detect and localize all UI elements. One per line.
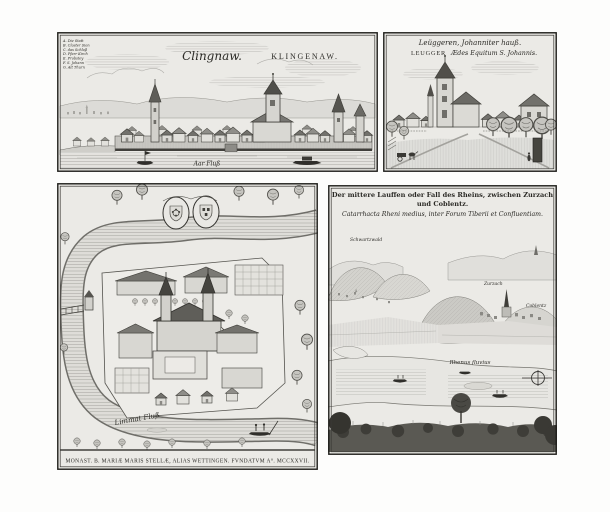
leuggern-art: Leüggeren, Johanniter hauß. LEUGGER Ædes… (383, 32, 557, 172)
rhine-title-line2: und Coblentz. (417, 200, 468, 208)
rhine-label-forest: Schwartzwald (350, 237, 382, 243)
klingnau-river-label: Aar Fluß (193, 161, 221, 168)
klingnau-title-script: Clingnaw. (182, 49, 242, 63)
wettingen-monastery (102, 258, 285, 418)
engraving-sheet: A. Die Statt B. Closter Sion C. das Schl… (0, 0, 610, 512)
rhine-river-label: Rhenus fluvius (448, 360, 490, 366)
legend-line: B. Closter Sion (62, 43, 90, 47)
panel-rhine-fall: Der mittere Lauffen oder Fall des Rheins… (328, 185, 557, 455)
rhine-label-town: Zurzach (483, 281, 503, 287)
panel-wettingen: Limmat Fluß MONAST. B. MARIÆ MARIS STELL… (57, 183, 318, 470)
legend-line: C. das Schloß (63, 48, 88, 52)
panel-leuggern: Leüggeren, Johanniter hauß. LEUGGER Ædes… (383, 32, 557, 172)
lower-garden (115, 368, 149, 393)
sandbank (147, 428, 167, 432)
klingnau-hills (60, 97, 375, 118)
river-island (464, 382, 492, 389)
cloister (153, 351, 207, 379)
legend-line: G. Alt Thurn (63, 65, 86, 69)
quay-wall (115, 149, 372, 152)
legend-line: A. Die Statt (62, 39, 84, 43)
legend-line: F. S. Johann (62, 61, 85, 65)
river-steps (225, 144, 237, 152)
panel-klingnau: A. Die Statt B. Closter Sion C. das Schl… (57, 32, 378, 172)
leuggern-title-latin-name: LEUGGER (411, 50, 446, 57)
east-wing (217, 333, 257, 353)
leuggern-title-german: Leüggeren, Johanniter hauß. (418, 39, 521, 47)
rhine-title-latin: Catarrhacta Rheni medius, inter Forum Ti… (342, 211, 543, 218)
wettingen-art: Limmat Fluß MONAST. B. MARIÆ MARIS STELL… (57, 183, 318, 470)
rhine-art: Der mittere Lauffen oder Fall des Rheins… (328, 185, 557, 455)
klingnau-title-caps: KLINGENAW. (271, 52, 339, 61)
south-east-wing (222, 368, 262, 388)
wettingen-caption: MONAST. B. MARIÆ MARIS STELLÆ, ALIAS WET… (66, 458, 310, 465)
rhine-label-right: Coblentz (526, 303, 547, 309)
rhine-title-line1: Der mittere Lauffen oder Fall des Rheins… (332, 191, 553, 199)
west-wing (119, 333, 152, 358)
klingnau-art: A. Die Statt B. Closter Sion C. das Schl… (57, 32, 378, 172)
corner-tree-left (329, 412, 351, 434)
cloud (471, 61, 539, 75)
legend-line: E. Probstey (62, 57, 84, 61)
legend-line: D. Pfarr Kirch (62, 52, 88, 56)
dark-tree-clump (451, 393, 471, 413)
leuggern-title-latin-rest: Ædes Equitum S. Johannis. (450, 50, 537, 57)
